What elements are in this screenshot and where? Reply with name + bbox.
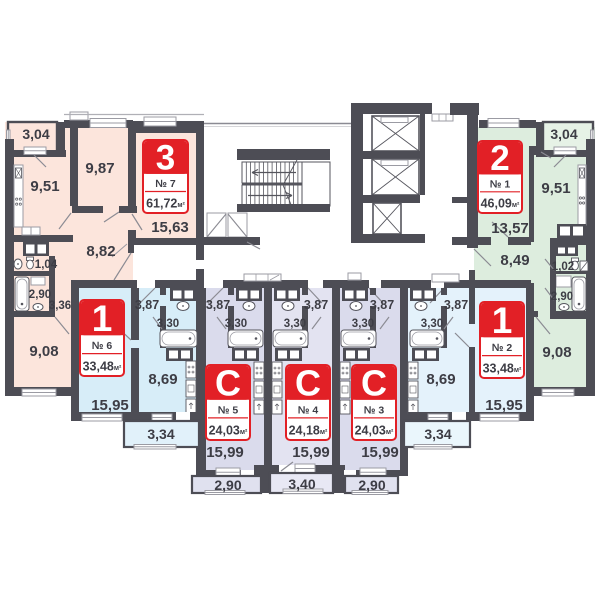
svg-text:3,04: 3,04 bbox=[550, 126, 577, 142]
svg-text:1,02: 1,02 bbox=[552, 261, 574, 273]
svg-text:8,49: 8,49 bbox=[500, 252, 529, 269]
svg-text:3,36: 3,36 bbox=[49, 300, 71, 312]
svg-text:9,87: 9,87 bbox=[85, 160, 114, 177]
svg-text:3,34: 3,34 bbox=[424, 426, 451, 442]
svg-text:8,69: 8,69 bbox=[426, 371, 455, 388]
svg-text:9,51: 9,51 bbox=[30, 178, 59, 195]
svg-text:3,30: 3,30 bbox=[157, 318, 179, 330]
svg-text:C: C bbox=[215, 362, 241, 403]
svg-text:15,99: 15,99 bbox=[292, 444, 330, 461]
svg-text:3: 3 bbox=[156, 139, 175, 178]
svg-text:3,87: 3,87 bbox=[206, 298, 230, 312]
svg-text:9,08: 9,08 bbox=[542, 344, 571, 361]
svg-text:9,08: 9,08 bbox=[29, 343, 58, 360]
svg-text:3,87: 3,87 bbox=[444, 298, 468, 312]
svg-text:№ 4: № 4 bbox=[298, 404, 319, 416]
svg-text:№ 3: № 3 bbox=[364, 404, 385, 416]
svg-text:1: 1 bbox=[92, 298, 113, 339]
svg-text:2: 2 bbox=[490, 139, 509, 178]
svg-text:8,82: 8,82 bbox=[86, 243, 115, 260]
svg-text:3,04: 3,04 bbox=[22, 126, 49, 142]
svg-text:3,40: 3,40 bbox=[288, 476, 315, 492]
svg-text:2,90: 2,90 bbox=[214, 477, 241, 493]
svg-text:№ 7: № 7 bbox=[155, 178, 176, 190]
svg-text:15,63: 15,63 bbox=[151, 219, 189, 236]
svg-text:3,30: 3,30 bbox=[225, 318, 247, 330]
svg-text:3,30: 3,30 bbox=[421, 318, 443, 330]
svg-text:15,99: 15,99 bbox=[361, 444, 399, 461]
svg-text:9,51: 9,51 bbox=[541, 180, 570, 197]
svg-text:1,04: 1,04 bbox=[35, 259, 58, 271]
svg-text:3,87: 3,87 bbox=[370, 298, 394, 312]
svg-text:8,69: 8,69 bbox=[148, 371, 177, 388]
svg-text:№ 1: № 1 bbox=[490, 178, 511, 190]
svg-text:3,30: 3,30 bbox=[352, 318, 374, 330]
svg-text:2,90: 2,90 bbox=[358, 477, 385, 493]
svg-text:13,57: 13,57 bbox=[491, 220, 529, 237]
svg-text:C: C bbox=[361, 362, 387, 403]
svg-text:2,90: 2,90 bbox=[551, 291, 573, 303]
svg-text:3,30: 3,30 bbox=[284, 318, 306, 330]
svg-text:C: C bbox=[295, 362, 321, 403]
svg-text:3,87: 3,87 bbox=[135, 298, 159, 312]
svg-text:№ 5: № 5 bbox=[218, 404, 239, 416]
svg-text:№ 2: № 2 bbox=[492, 342, 513, 354]
svg-text:15,99: 15,99 bbox=[206, 444, 244, 461]
svg-text:№ 6: № 6 bbox=[92, 340, 113, 352]
svg-text:15,95: 15,95 bbox=[485, 397, 523, 414]
svg-text:3,34: 3,34 bbox=[147, 426, 174, 442]
svg-text:15,95: 15,95 bbox=[91, 397, 129, 414]
svg-text:3,87: 3,87 bbox=[304, 298, 328, 312]
svg-text:1: 1 bbox=[492, 300, 513, 341]
